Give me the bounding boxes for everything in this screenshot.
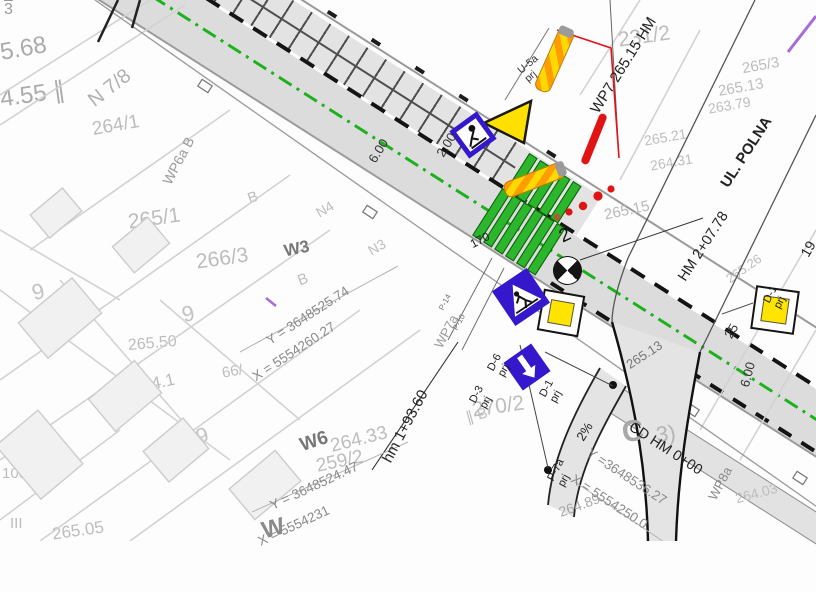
road-design-plan: { "map": { "street": "UL. POLNA", "chain…	[0, 0, 816, 541]
utility-purple-line	[788, 16, 816, 52]
utility-purple-tick	[266, 298, 276, 306]
survey-leader-line	[580, 218, 703, 260]
side-street-edge	[612, 258, 628, 322]
marking-leader-line	[462, 268, 504, 350]
pole-mark	[132, 0, 140, 28]
d1-leader-line	[722, 303, 753, 314]
background-buildings	[0, 188, 301, 520]
d1-yellow-core	[547, 299, 575, 327]
pole-mark	[98, 0, 118, 42]
